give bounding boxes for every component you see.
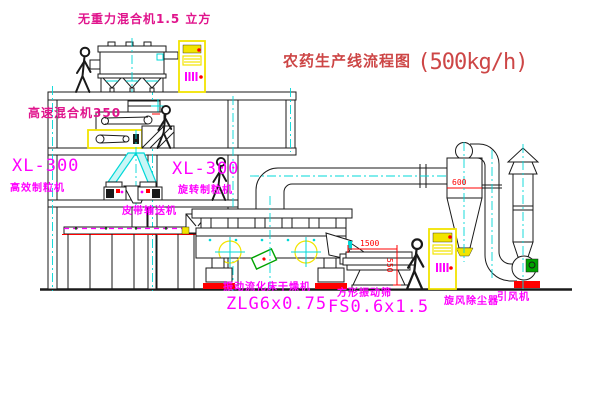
- label-belt-conveyor: 皮带输送机: [122, 207, 177, 217]
- label-sieve-model: FS0.6x1.5: [328, 299, 429, 316]
- exhaust-duct: [250, 164, 466, 212]
- title-text: 农药生产线流程图: [283, 52, 411, 70]
- diagram-title: 农药生产线流程图 (500kg/h): [283, 52, 527, 74]
- label-granulator-left-name: 高效制粒机: [10, 184, 65, 194]
- title-capacity: (500kg/h): [417, 50, 527, 75]
- granulators: [104, 182, 162, 203]
- label-fan: 引风机: [497, 293, 530, 303]
- control-cabinet-1: [179, 41, 205, 92]
- label-gravity-mixer: 无重力混合机1.5 立方: [78, 13, 211, 25]
- cad-flow-diagram: 农药生产线流程图 (500kg/h) 无重力混合机1.5 立方 高速混合机350…: [0, 0, 600, 403]
- label-granulator-right-name: 旋转制粒机: [178, 186, 233, 196]
- dim-cyclone-diameter: 600: [452, 179, 466, 187]
- dim-sieve-outlet-height: 550: [385, 258, 393, 272]
- label-dryer-model: ZLG6x0.75: [226, 296, 327, 313]
- label-high-speed-mixer: 高速混合机350: [28, 107, 121, 119]
- control-cabinet-2: [429, 229, 456, 289]
- label-granulator-right-model: XL-300: [172, 161, 239, 178]
- exhaust-stack-and-fan: [508, 144, 540, 292]
- dim-sieve-length: 1500: [360, 240, 379, 248]
- label-granulator-left-model: XL-300: [12, 158, 79, 175]
- label-dryer-name: 振动流化床干燥机: [223, 283, 311, 293]
- gravity-free-mixer: [90, 38, 178, 92]
- label-cyclone: 旋风除尘器: [444, 297, 499, 307]
